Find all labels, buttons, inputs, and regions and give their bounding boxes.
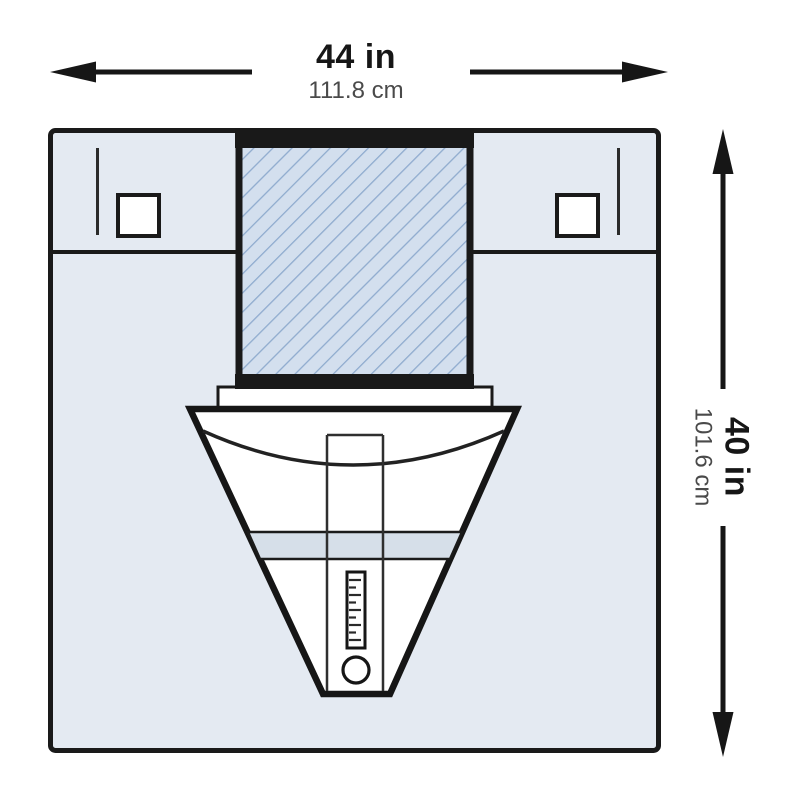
height-dimension-metric: 101.6 cm xyxy=(691,367,715,547)
width-dimension-label: 44 in xyxy=(231,40,481,74)
height-dimension: 40 in 101.6 cm xyxy=(691,367,754,547)
reinforcement-hatch-area xyxy=(239,133,470,388)
pouch-flange xyxy=(218,387,492,408)
height-arrow-up-icon xyxy=(713,129,734,389)
height-arrow-down-icon xyxy=(713,526,734,757)
width-dimension: 44 in 111.8 cm xyxy=(231,40,481,103)
hatch-top-bar xyxy=(235,128,474,148)
pouch-band xyxy=(248,532,462,559)
left-tab-square xyxy=(118,195,159,236)
width-arrow-right-icon xyxy=(470,62,668,83)
graduated-strip xyxy=(347,572,365,648)
height-dimension-label: 40 in xyxy=(720,367,754,547)
hatch-bottom-bar xyxy=(235,374,474,389)
width-arrow-left-icon xyxy=(50,62,252,83)
drape-diagram-svg xyxy=(0,0,800,800)
drain-port-circle xyxy=(343,657,369,683)
right-tab-square xyxy=(557,195,598,236)
width-dimension-metric: 111.8 cm xyxy=(231,79,481,103)
product-dimension-diagram: 44 in 111.8 cm 40 in 101.6 cm xyxy=(0,0,800,800)
